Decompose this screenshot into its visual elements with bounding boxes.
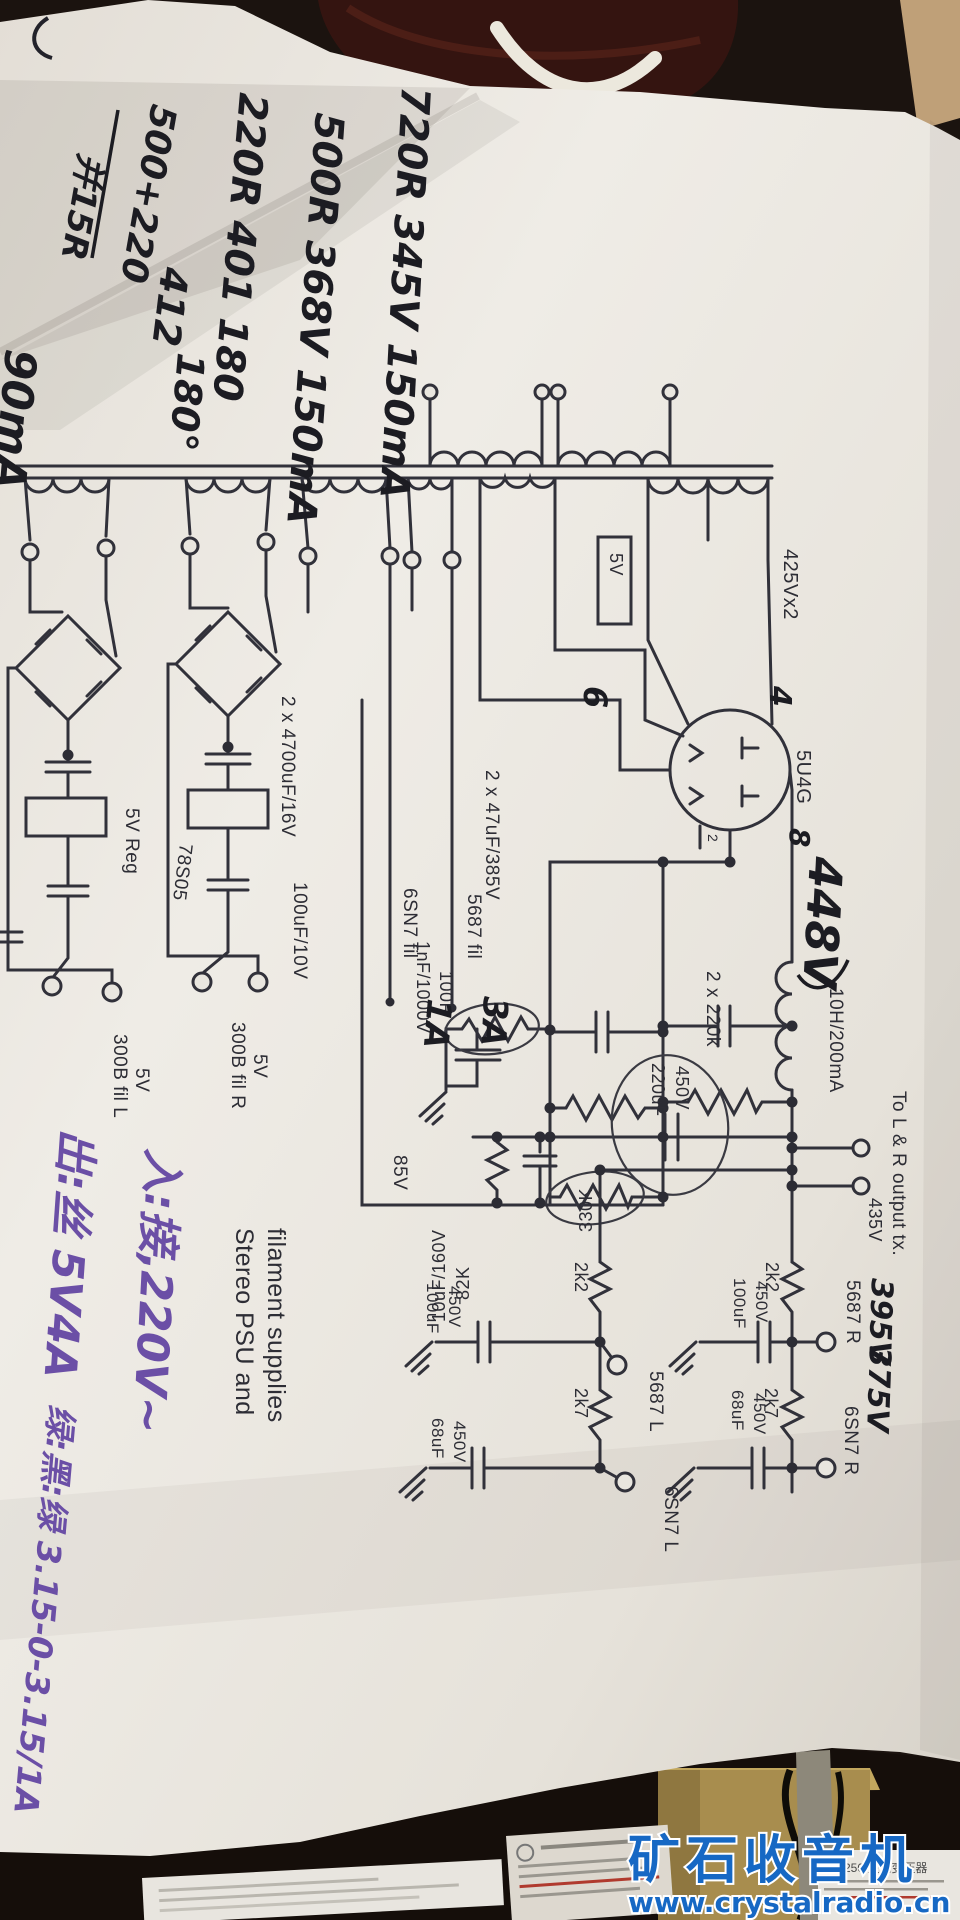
note-1a: 1A: [415, 997, 459, 1050]
label-res-330k: 330K: [576, 1188, 596, 1232]
label-300b-fil-r-v: 5V: [249, 1054, 270, 1078]
winding-terminal: [404, 552, 420, 568]
label-68uf-r-v: 450V: [750, 1393, 769, 1435]
schematic-title-line2: filament supplies: [262, 1228, 290, 1423]
label-85v: 85V: [389, 1155, 410, 1190]
output-terminal-300b-r: [249, 973, 267, 991]
label-tube-5u4g: 5U4G: [792, 750, 814, 804]
output-tx-terminal: [853, 1140, 869, 1156]
output-tx-terminal: [853, 1178, 869, 1194]
output-terminal-300b-l: [43, 977, 61, 995]
label-cap-220uf-v: 450V: [672, 1066, 692, 1110]
label-100uf-r-v: 450V: [752, 1281, 771, 1323]
label-2k7-l: 2k7: [571, 1388, 591, 1419]
note-pin6: 6: [576, 686, 614, 708]
label-100uf-l: 100uF: [423, 1283, 442, 1334]
label-5687-l: 5687 L: [645, 1371, 666, 1432]
label-res-220k: 2 x 220k: [702, 971, 723, 1047]
winding-terminal: [98, 540, 114, 556]
note-180deg: 180°: [160, 351, 212, 453]
label-choke: 10H/200mA: [825, 988, 846, 1093]
label-cap-100uf-10v: 100uF/10V: [289, 882, 310, 979]
watermark-url: www.crystalradio.cn: [628, 1886, 950, 1919]
label-6sn7-r: 6SN7 R: [840, 1406, 861, 1476]
label-cap-47uf: 2 x 47uF/385V: [481, 770, 502, 900]
mains-terminal: [663, 385, 677, 399]
label-cap-4700uf: 2 x 4700uF/16V: [277, 696, 298, 837]
terminal-6sn7-r: [817, 1459, 835, 1477]
label-2k2-l: 2k2: [571, 1262, 591, 1293]
output-terminal-300b-r: [193, 973, 211, 991]
label-300b-fil-l-v: 5V: [131, 1068, 152, 1092]
winding-terminal: [22, 544, 38, 560]
label-435v: 435V: [865, 1198, 885, 1242]
label-5687-r: 5687 R: [842, 1280, 863, 1344]
label-68uf-r: 68uF: [728, 1390, 747, 1431]
watermark-cn: 矿石收音机: [628, 1831, 918, 1891]
label-68uf-l: 68uF: [428, 1418, 447, 1459]
winding-terminal: [382, 548, 398, 564]
label-300b-fil-l: 300B fil L: [109, 1034, 130, 1118]
label-pin2: 2: [705, 834, 721, 842]
label-5687-fil: 5687 fil: [463, 894, 484, 959]
winding-terminal: [182, 538, 198, 554]
label-100uf-r: 100uF: [730, 1278, 749, 1329]
photo-of-schematic: BK-250 控制变压器: [0, 0, 960, 1920]
note-pin8: 8: [783, 828, 816, 847]
label-5v-reg: 5V Reg: [121, 808, 142, 874]
output-terminal-300b-l: [103, 983, 121, 1001]
label-68uf-l-v: 450V: [450, 1421, 469, 1463]
terminal-6sn7-l: [616, 1473, 634, 1491]
winding-terminal: [258, 534, 274, 550]
label-hv-winding: 425Vx2: [779, 549, 801, 620]
label-300b-fil-r: 300B fil R: [227, 1022, 248, 1109]
label-cap-220uf: 220uF: [648, 1063, 668, 1117]
terminal-5687-r: [817, 1333, 835, 1351]
note-448v: 448V: [792, 854, 853, 993]
label-6sn7-l: 6SN7 L: [660, 1486, 681, 1552]
terminal-5687-l: [608, 1356, 626, 1374]
note-3a: 3A: [472, 996, 515, 1048]
winding-terminal: [444, 552, 460, 568]
mains-terminal: [535, 385, 549, 399]
label-output-tx: To L & R output tx.: [888, 1091, 909, 1256]
mains-terminal: [551, 385, 565, 399]
note-pin4: 4: [762, 685, 797, 707]
photo-canvas: BK-250 控制变压器: [0, 0, 960, 1920]
note-375v: 375V: [859, 1346, 897, 1436]
watermark: 矿石收音机 www.crystalradio.cn: [628, 1831, 950, 1919]
mains-terminal: [423, 385, 437, 399]
label-100uf-l-v: 450V: [445, 1286, 464, 1328]
label-5v-winding: 5V: [606, 553, 626, 576]
winding-terminal: [300, 548, 316, 564]
schematic-title-line1: Stereo PSU and: [230, 1228, 258, 1416]
